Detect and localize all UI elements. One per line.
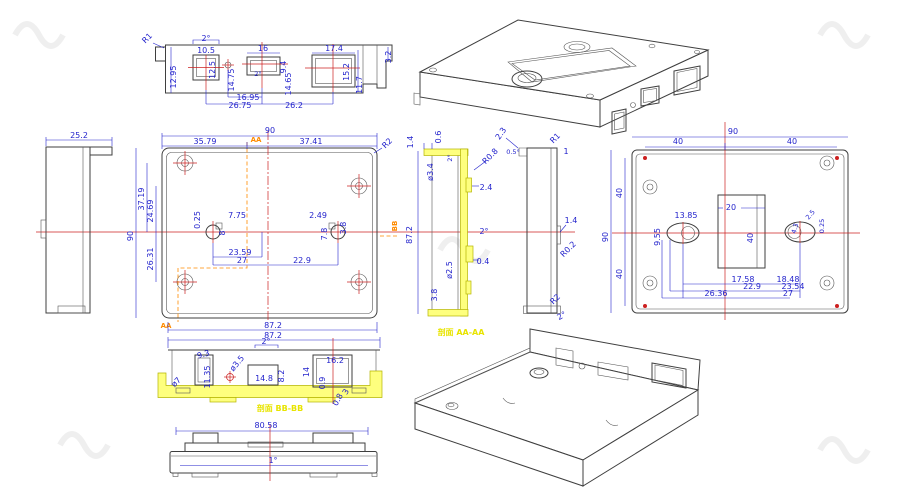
dim-32: 3.2 bbox=[384, 51, 393, 64]
dim-229: 22.9 bbox=[743, 282, 761, 291]
dim-05deg: 0.5° bbox=[506, 148, 520, 156]
dim-78: 7.8 bbox=[320, 228, 329, 241]
dim-height: 90 bbox=[126, 231, 135, 241]
dim-height: 87.2 bbox=[405, 226, 414, 244]
dim-off-right: 37.41 bbox=[300, 137, 323, 146]
dim-38: 3.8 bbox=[339, 222, 348, 235]
view-left-side: 25.2 bbox=[41, 131, 112, 313]
cad-drawing-sheet: R1 2° 10.5 12.5 12.95 14.75 16 9.4 2° 14… bbox=[0, 0, 900, 500]
dim-38: 3.8 bbox=[430, 289, 439, 302]
dim-slot2-draft: 2° bbox=[254, 70, 261, 78]
view-section-aa: 1.4 0.6 2° ø3.4 R0.8 2.4 87.2 2° 0.4 ø2.… bbox=[405, 131, 500, 337]
dim-w40-left: 40 bbox=[673, 137, 683, 146]
dim-1135: 11.35 bbox=[203, 366, 212, 389]
dim-14: 14 bbox=[302, 367, 311, 377]
dimension-lines bbox=[611, 137, 848, 313]
dim-dia35: ø3.5 bbox=[228, 354, 246, 373]
dim-r2: R2 bbox=[548, 292, 562, 306]
view-iso-top bbox=[414, 20, 708, 134]
dim-slot1-w: 10.5 bbox=[197, 46, 215, 55]
dim-slot2-w: 16 bbox=[258, 44, 268, 53]
dim-1465: 14.65 bbox=[284, 73, 293, 96]
dim-2631: 26.31 bbox=[146, 248, 155, 271]
dim-955: 9.55 bbox=[653, 228, 662, 246]
dim-249: 2.49 bbox=[309, 211, 327, 220]
dim-draft-top: 2° bbox=[201, 34, 210, 43]
dim-draft: 1° bbox=[268, 456, 277, 465]
dim-draft: 2° bbox=[261, 337, 270, 346]
dim-04: 0.4 bbox=[477, 257, 490, 266]
dim-depth: 25.2 bbox=[70, 131, 88, 140]
dim-window-w: 20 bbox=[726, 203, 736, 212]
dim-27: 27 bbox=[783, 289, 793, 298]
dim-117: 11.7 bbox=[355, 76, 364, 94]
drawing-canvas: R1 2° 10.5 12.5 12.95 14.75 16 9.4 2° 14… bbox=[0, 0, 900, 500]
dim-1385: 13.85 bbox=[675, 211, 698, 220]
view-right-side: 2.3 0.5° R1 1 1.4 R0.2 R2 2° bbox=[494, 126, 578, 322]
dim-edge-h: 12.95 bbox=[169, 66, 178, 89]
boss-dia25 bbox=[466, 281, 471, 294]
dim-3719: 37.19 bbox=[137, 188, 146, 211]
section-bb-label: 剖面 BB-BB bbox=[257, 403, 304, 413]
view-section-bb: 87.2 2° ø7 9.3 11.35 ø3.5 14.8 8.2 14 16… bbox=[158, 331, 382, 413]
dim-2deg-mid: 2° bbox=[479, 227, 488, 236]
tab-mid bbox=[466, 246, 473, 262]
dim-2636: 26.36 bbox=[705, 289, 728, 298]
dim-8: 8 bbox=[218, 230, 227, 235]
cutout-2 bbox=[247, 57, 280, 75]
dim-w40-right: 40 bbox=[787, 137, 797, 146]
dim-slot3-h: 15.2 bbox=[342, 63, 351, 81]
dim-162: 16.2 bbox=[326, 356, 344, 365]
back-outline bbox=[632, 150, 848, 313]
dim-width: 90 bbox=[728, 127, 738, 136]
dim-25: 2.5 bbox=[804, 208, 817, 221]
dim-775: 7.75 bbox=[228, 211, 246, 220]
dim-r1: R1 bbox=[140, 31, 154, 45]
dim-hole-c: 14.75 bbox=[227, 69, 236, 92]
dim-14: 1.4 bbox=[406, 136, 415, 149]
boss-dia34 bbox=[466, 178, 472, 192]
dim-025: 0.25 bbox=[193, 211, 202, 229]
dim-height: 90 bbox=[601, 232, 610, 242]
dim-r1: R1 bbox=[548, 131, 562, 145]
dim-262: 26.2 bbox=[285, 101, 303, 110]
dim-2675: 26.75 bbox=[229, 101, 252, 110]
dim-24: 2.4 bbox=[480, 183, 493, 192]
dim-229: 22.9 bbox=[293, 256, 311, 265]
dim-14: 1.4 bbox=[565, 216, 578, 225]
view-bottom-elevation: 80.58 1° bbox=[170, 421, 377, 481]
dimension-lines bbox=[153, 40, 388, 104]
dim-h40-top: 40 bbox=[615, 188, 624, 198]
dim-off-left: 35.79 bbox=[194, 137, 217, 146]
dim-93: 9.3 bbox=[196, 349, 211, 361]
dim-23: 2.3 bbox=[494, 126, 509, 142]
dim-width: 80.58 bbox=[255, 421, 278, 430]
view-front: AA AA BB 90 35.79 37.41 R2 90 37.19 2 bbox=[126, 126, 399, 333]
dim-width-outer: 87.2 bbox=[264, 321, 282, 330]
dim-025: 0.25 bbox=[818, 219, 826, 233]
dim-window-h: 40 bbox=[746, 233, 755, 243]
section-aa-label: 剖面 AA-AA bbox=[438, 327, 486, 337]
dim-09: 0.9 bbox=[318, 377, 327, 390]
dim-width: 90 bbox=[265, 126, 275, 135]
dim-slot2-h: 9.4 bbox=[279, 61, 288, 74]
dim-h40-bottom: 40 bbox=[615, 269, 624, 279]
dim-dia34: ø3.4 bbox=[426, 163, 435, 181]
dim-2deg-top: 2° bbox=[446, 154, 454, 161]
view-back: 90 40 40 90 40 40 20 40 13.85 9.55 2.5 0… bbox=[601, 122, 860, 320]
dim-82: 8.2 bbox=[277, 370, 286, 383]
dim-148: 14.8 bbox=[255, 374, 273, 383]
dim-06: 0.6 bbox=[434, 131, 443, 144]
dim-slot1-h: 12.5 bbox=[208, 61, 217, 79]
dim-slot3-w: 17.4 bbox=[325, 44, 343, 53]
dim-27: 27 bbox=[237, 256, 247, 265]
view-top-elevation: R1 2° 10.5 12.5 12.95 14.75 16 9.4 2° 14… bbox=[140, 31, 393, 110]
side-rib bbox=[557, 226, 561, 244]
section-aa-marker-top: AA bbox=[251, 136, 262, 144]
view-iso-bottom bbox=[415, 329, 700, 486]
dim-r02: R0.2 bbox=[559, 240, 578, 259]
dim-1: 1 bbox=[563, 147, 568, 156]
section-bb-marker: BB bbox=[391, 221, 399, 232]
section-aa-marker-bottom: AA bbox=[161, 322, 172, 330]
dim-corner-r: R2 bbox=[380, 136, 394, 150]
dim-r08: R0.8 bbox=[481, 147, 500, 166]
dim-dia25: ø2.5 bbox=[445, 261, 454, 279]
dim-2469: 24.69 bbox=[146, 200, 155, 223]
